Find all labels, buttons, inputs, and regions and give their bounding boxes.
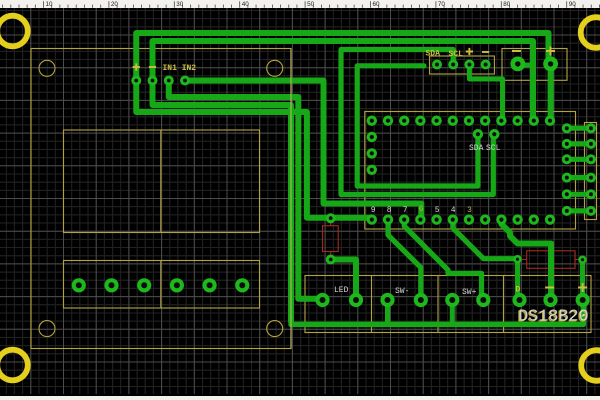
svg-text:40: 40: [242, 1, 250, 8]
svg-text:60: 60: [373, 1, 381, 8]
svg-text:SDA: SDA: [469, 144, 484, 153]
svg-text:SDA: SDA: [426, 50, 441, 59]
svg-text:DS18B20: DS18B20: [518, 308, 589, 327]
svg-text:3: 3: [467, 206, 472, 215]
svg-text:SW-: SW-: [395, 287, 409, 296]
svg-text:30: 30: [176, 1, 184, 8]
svg-text:6: 6: [419, 205, 424, 214]
svg-text:90: 90: [569, 1, 577, 8]
svg-text:9: 9: [371, 206, 376, 215]
svg-text:D: D: [516, 286, 521, 295]
svg-text:4: 4: [451, 206, 456, 215]
svg-text:8: 8: [387, 206, 392, 215]
svg-text:80: 80: [503, 1, 511, 8]
svg-text:5: 5: [435, 206, 440, 215]
svg-text:10: 10: [46, 1, 54, 8]
svg-text:7: 7: [403, 206, 408, 215]
svg-text:20: 20: [111, 1, 119, 8]
svg-text:LED: LED: [334, 286, 349, 295]
svg-text:IN1 IN2: IN1 IN2: [163, 64, 197, 73]
svg-text:SW+: SW+: [462, 288, 477, 297]
svg-text:SCL: SCL: [449, 50, 464, 59]
svg-text:50: 50: [307, 1, 315, 8]
svg-text:70: 70: [438, 1, 446, 8]
svg-text:SCL: SCL: [486, 144, 501, 153]
